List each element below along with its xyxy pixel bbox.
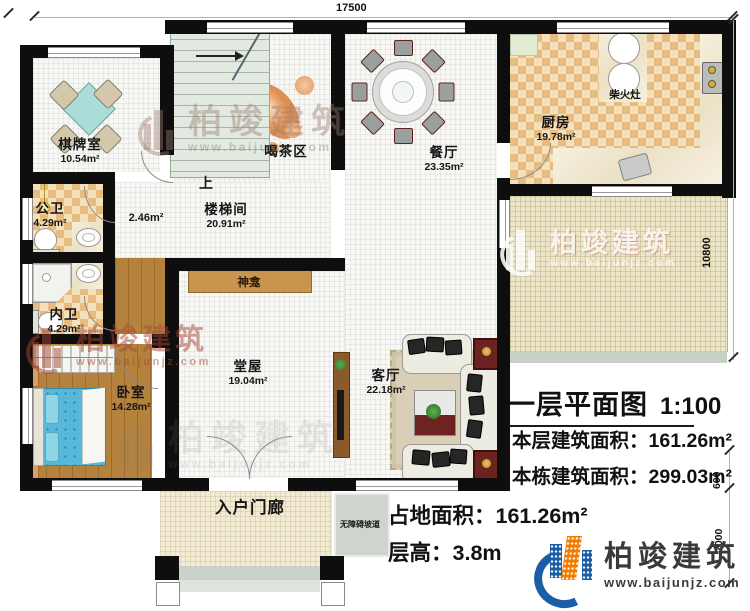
sofa-cushion [444,339,462,355]
land-area-line: 占地面积：161.26m² [388,499,588,530]
porch-column [320,556,344,580]
stair-arrow-head [235,51,244,61]
wall [165,478,209,491]
window [592,186,672,197]
dimension-line-right [733,20,734,360]
storey-height-line: 层高：3.8m [388,536,502,567]
lazy-susan [392,81,414,103]
window [22,264,33,304]
building-area-line: 本栋建筑面积：299.03m² [512,460,732,489]
porch-label: 入户门廊 [208,494,292,518]
sofa-cushion [411,449,430,466]
corridor-area-label: 2.46m² [122,212,170,224]
brand-logo: 柏竣建筑 www.baijunjz.com [534,534,740,598]
firewood-stove-label: 柴火灶 [596,87,654,102]
dimension-line-top [35,17,733,18]
porch-step-2 [178,580,320,592]
wardrobe [33,345,115,373]
dining-chair [394,128,413,144]
sofa-cushion [431,451,450,468]
dining-chair [352,83,368,102]
stair-arrow-line [196,55,236,57]
sofa-cushion [468,395,485,415]
floor-terrace [510,196,728,352]
room-label-chess: 棋牌室 10.54m² [48,138,112,165]
plan-title-text: 一层平面图 [508,390,648,420]
gas-burner [708,80,716,88]
floor-area-line: 本层建筑面积：161.26m² [512,424,732,453]
window [52,480,142,491]
staircase [170,28,270,178]
floor-plan-canvas: 柏竣建筑 www.baijunjz.com 柏竣建筑 www.baijunjz.… [0,0,750,611]
shrine-label: 神龛 [188,274,310,290]
dining-chair [394,40,413,56]
sofa-cushion [407,338,426,355]
window [499,200,510,248]
plan-title: 一层平面图1:100 [508,383,694,427]
dimension-right-height: 10800 [701,212,713,268]
room-label-tea-area: 喝茶区 [258,145,314,160]
wall [160,45,174,155]
room-label-bedroom: 卧室 14.28m² [102,386,160,413]
tv-screen [337,390,344,440]
window [367,22,465,33]
room-label-private-bath: 内卫 4.29m² [40,308,88,335]
brand-logo-icon [534,534,598,598]
brand-website: www.baijunjz.com [604,575,740,590]
door-chess-room [141,151,173,183]
bathroom-sink [76,264,101,283]
side-table-lamp [482,347,491,356]
window [48,47,140,58]
bed-headboard [33,388,44,466]
logo-building-bar [550,544,562,578]
wall [497,20,510,143]
side-table-lamp [482,459,491,468]
porch-column [155,556,179,580]
room-label-main-hall: 堂屋 19.04m² [218,360,278,387]
kitchen-appliance [510,34,538,56]
terrace-step [510,352,727,363]
wall [165,258,345,271]
room-label-public-bath: 公卫 4.29m² [26,202,74,229]
sofa-cushion [466,419,483,439]
dimension-tick [3,8,14,19]
sofa-cushion [449,448,467,464]
room-label-dining: 餐厅 23.35m² [414,146,474,173]
dimension-tick [29,11,40,22]
room-label-living: 客厅 22.18m² [354,369,418,396]
wall [331,20,345,170]
brand-name: 柏竣建筑 [604,542,740,572]
porch-column-base [156,582,180,606]
sofa-cushion [426,337,445,353]
toilet-bowl [34,228,57,251]
window [557,22,669,33]
ramp-label: 无障碍坡道 [334,519,386,530]
tea-cushion [285,122,301,138]
dimension-top-width: 17500 [336,2,367,14]
shower-drain [42,273,51,282]
logo-building-bar [582,550,592,580]
wall [165,271,179,491]
wall [20,172,115,184]
window [22,388,33,444]
window [356,480,458,491]
porch-step-1 [178,566,320,580]
gas-burner [708,66,716,74]
bathroom-sink [76,228,101,247]
bed-pillow [45,394,59,424]
tea-cushion [295,76,314,95]
room-label-stairwell: 楼梯间 20.91m² [192,203,260,230]
floor-bedroom-vestibule [115,258,165,334]
coffee-table-plant [426,404,441,419]
wall [20,252,115,263]
firewood-stove-burner [608,32,640,64]
up-label: 上 [194,173,218,193]
window [207,22,293,33]
sofa-cushion [466,373,483,392]
wardrobe-rod [33,357,113,358]
plan-scale: 1:100 [660,393,721,420]
dining-chair [439,83,455,102]
tv-plant [335,359,346,370]
wall [20,334,117,344]
porch-column-base [321,582,345,606]
room-label-kitchen: 厨房 19.78m² [526,116,586,143]
bed-pillow [45,432,59,462]
